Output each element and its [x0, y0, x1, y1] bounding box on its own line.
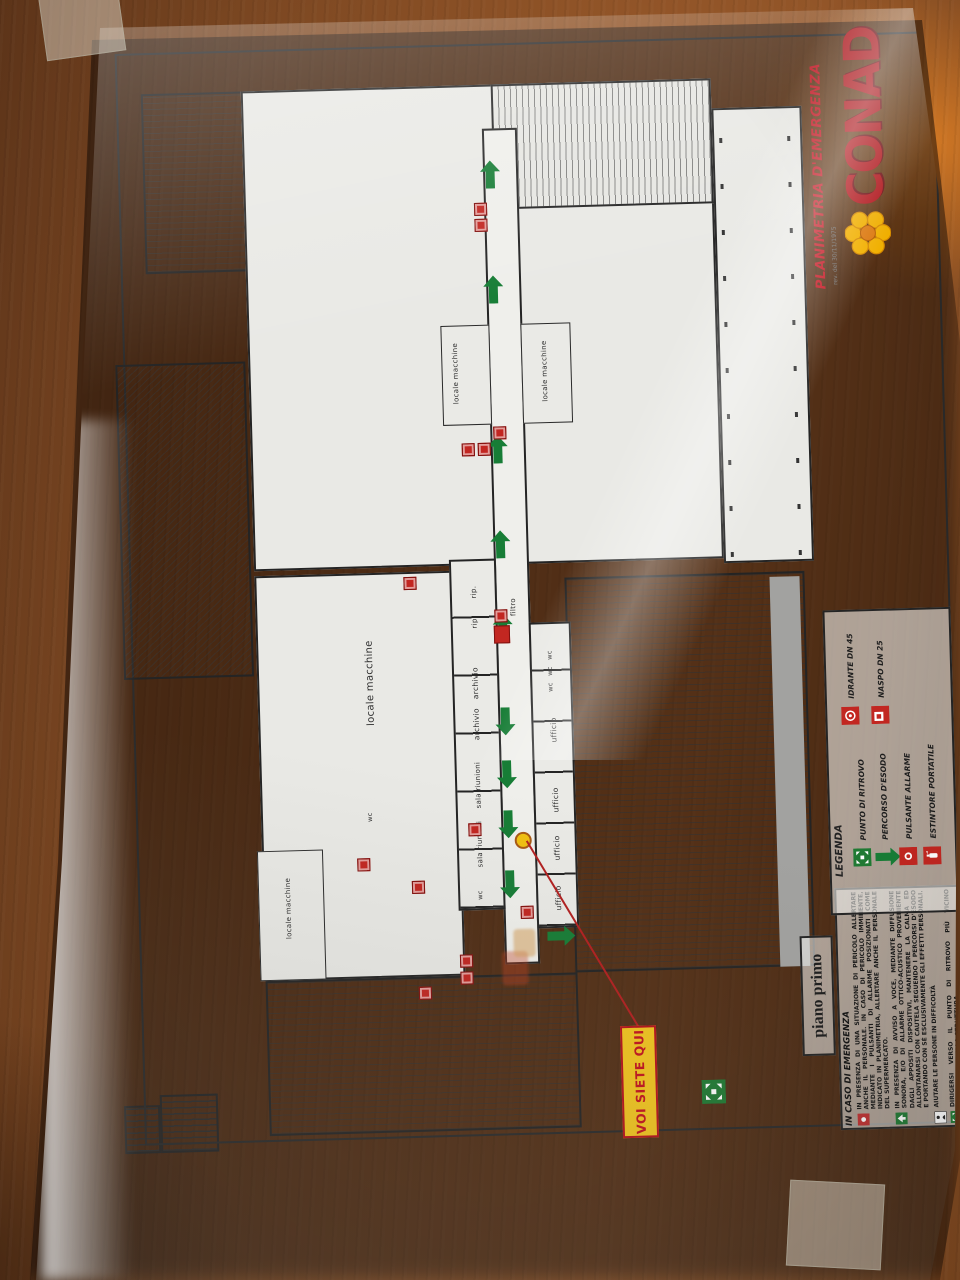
alarm-button-icon	[899, 847, 917, 865]
room-label: ufficio	[551, 787, 561, 812]
fire-extinguisher-icon	[468, 823, 481, 836]
adhesive-tape	[786, 1180, 885, 1271]
assembly-point-icon	[853, 848, 871, 866]
hydrant-icon	[460, 954, 473, 967]
plan-sheet-in-sleeve: locale macchine locale macchine locale m…	[0, 0, 960, 1280]
hose-reel-icon	[871, 706, 889, 724]
room-label: wc	[545, 650, 553, 660]
legend-title: LEGENDA	[833, 824, 845, 877]
hatched-roof-area	[491, 78, 714, 209]
escape-route-arrow-icon	[875, 848, 893, 866]
hydrant-icon	[412, 881, 425, 894]
legend-item-label: NASPO DN 25	[875, 640, 886, 698]
room-label: wc	[366, 812, 374, 822]
escape-route-arrow-icon	[496, 760, 517, 789]
emergency-instructions-box: IN CASO DI EMERGENZA IN PRESENZA DI UNA …	[834, 885, 960, 1130]
alarm-button-icon	[419, 986, 432, 999]
instruction-text: IN PRESENZA DI AVVISO A VOCE, MEDIANTE D…	[889, 890, 930, 1109]
hatched-roof-area	[115, 361, 254, 680]
room-label: wc	[476, 890, 484, 900]
room-label: archivio	[470, 667, 480, 699]
flower-icon	[844, 209, 891, 256]
escape-route-arrow-icon	[483, 275, 504, 304]
hydrant-icon	[841, 706, 859, 724]
alarm-button-icon	[857, 1113, 869, 1125]
escape-route-arrow-icon	[495, 707, 516, 736]
escape-route-arrow-icon	[547, 925, 576, 946]
fire-extinguisher-icon	[923, 846, 941, 864]
revision-note: rev. del 30/11/1975	[831, 226, 840, 285]
assembly-point-icon	[701, 1079, 726, 1104]
legend-item-label: PULSANTE ALLARME	[902, 753, 913, 839]
worn-stamp-mark	[513, 929, 536, 958]
room-label: locale macchine	[364, 640, 377, 726]
room-label: locale macchine	[540, 340, 550, 401]
room-label: ufficio	[549, 717, 559, 742]
escape-route-icon	[896, 1112, 908, 1124]
instruction-text: IN PRESENZA DI UNA SITUAZIONE DI PERICOL…	[850, 891, 891, 1110]
room-label: ufficio	[552, 835, 562, 860]
escape-route-arrow-icon	[490, 530, 511, 559]
legend-item-label: ESTINTORE PORTATILE	[926, 744, 938, 839]
title-block: PLANIMETRIA D'EMERGENZA rev. del 30/11/1…	[806, 26, 939, 295]
room-label: archivio	[472, 708, 482, 740]
room-label: rip.	[470, 586, 478, 599]
legend-item-label: IDRANTE DN 45	[845, 633, 856, 699]
alarm-button-icon	[494, 625, 510, 643]
photo-of-emergency-plan: locale macchine locale macchine locale m…	[0, 0, 960, 1280]
escape-route-arrow-icon	[480, 160, 501, 189]
plan-tilt-wrapper: locale macchine locale macchine locale m…	[0, 0, 960, 1280]
fire-extinguisher-icon	[460, 971, 473, 984]
instruction-row: IN PRESENZA DI UNA SITUAZIONE DI PERICOL…	[850, 891, 892, 1126]
hydrant-icon	[478, 443, 491, 456]
instruction-row: IN PRESENZA DI AVVISO A VOCE, MEDIANTE D…	[889, 890, 931, 1125]
room-label: rip.	[470, 616, 478, 629]
room-label: wc	[546, 666, 554, 676]
fire-extinguisher-icon	[474, 219, 487, 232]
room-label: wc	[546, 682, 554, 692]
you-are-here-label: VOI SIETE QUI	[620, 1025, 659, 1138]
fire-extinguisher-icon	[494, 609, 507, 622]
fire-extinguisher-icon	[521, 906, 534, 919]
floor-label-box: piano primo	[800, 935, 836, 1056]
legend-item-label: PERCORSO D'ESODO	[878, 753, 889, 840]
alarm-button-icon	[493, 426, 506, 439]
room-label: sala riunioni	[474, 762, 483, 809]
room-label: locale macchine	[284, 878, 294, 939]
room-label: locale macchine	[451, 343, 461, 404]
machine-room	[440, 325, 492, 426]
fire-extinguisher-icon	[462, 443, 475, 456]
brand-wordmark: CONAD	[833, 26, 896, 207]
hydrant-icon	[474, 203, 487, 216]
escape-route-arrow-icon	[500, 870, 521, 899]
assist-person-icon	[934, 1111, 946, 1123]
floor-plan-landscape: locale macchine locale macchine locale m…	[94, 16, 960, 1154]
fire-extinguisher-icon	[403, 577, 416, 590]
instruction-text: AIUTARE LE PERSONE IN DIFFICOLTÀ	[930, 985, 940, 1107]
brand-logo: CONAD	[834, 26, 895, 257]
legend-box: LEGENDA PUNTO DI RITROVO PERCORSO D'ESOD…	[822, 607, 958, 915]
fire-extinguisher-icon	[357, 858, 370, 871]
legend-item-label: PUNTO DI RITROVO	[857, 759, 868, 840]
